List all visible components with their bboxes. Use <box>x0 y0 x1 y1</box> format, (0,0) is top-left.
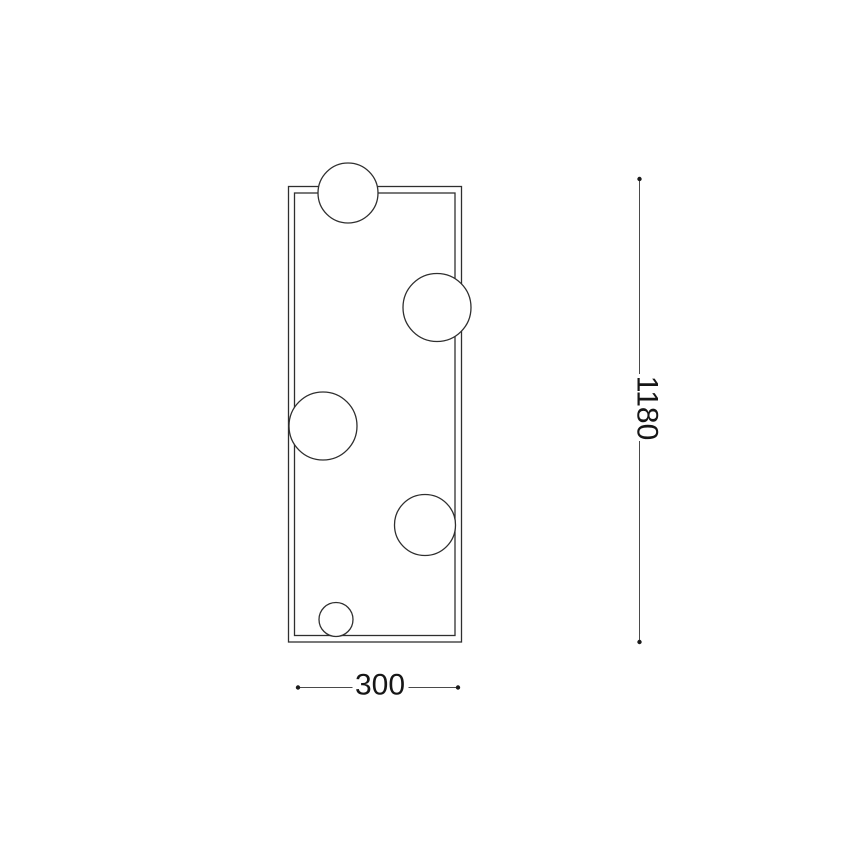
height-dimension: 1180 <box>631 177 664 644</box>
sphere-bottom-small <box>319 603 353 637</box>
sphere-upper-right <box>403 274 471 342</box>
width-dimension-endpoint-right <box>456 685 460 689</box>
height-dimension-endpoint-top <box>637 177 641 181</box>
height-dimension-label: 1180 <box>631 376 664 441</box>
sphere-lower-right <box>395 495 456 556</box>
width-dimension-label: 300 <box>355 669 405 702</box>
sphere-middle-left <box>289 392 357 460</box>
sphere-top <box>318 163 378 223</box>
height-dimension-endpoint-bottom <box>637 640 641 644</box>
drawing-canvas: 1180 300 <box>0 0 868 868</box>
dimension-diagram: 1180 300 <box>0 0 868 868</box>
spheres <box>289 163 471 637</box>
width-dimension-endpoint-left <box>296 685 300 689</box>
width-dimension: 300 <box>296 669 460 702</box>
